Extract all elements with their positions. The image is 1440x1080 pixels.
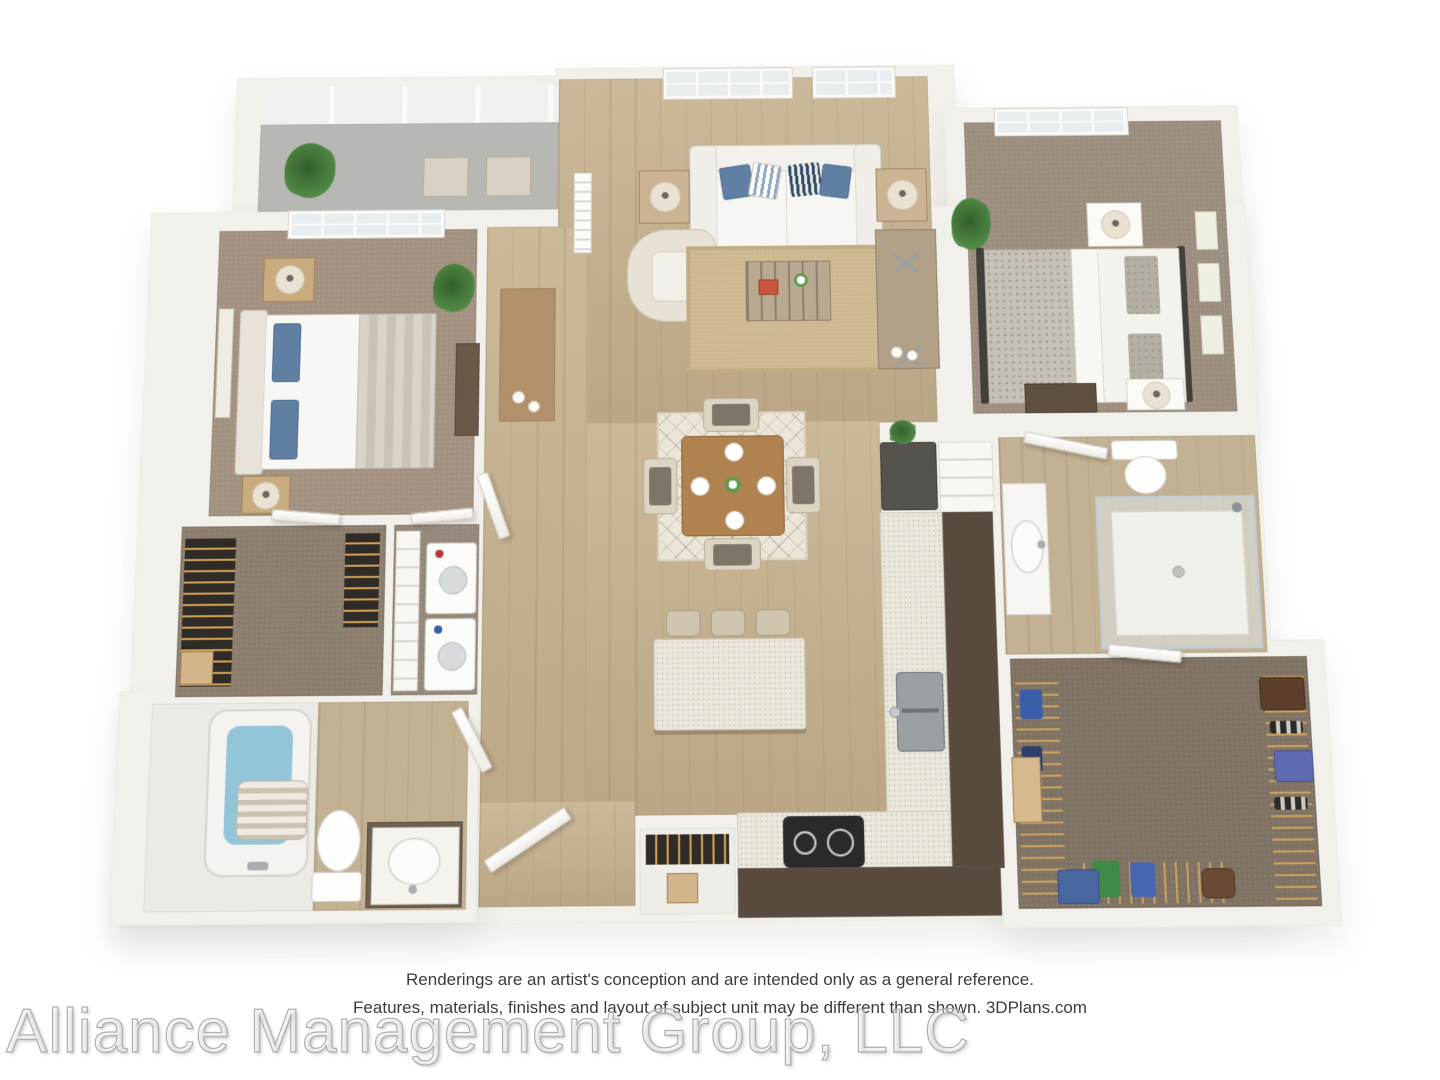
toilet-1 <box>307 809 366 906</box>
media-console-x-detail-1 <box>888 245 924 280</box>
shower-head <box>1232 502 1243 512</box>
kitchen-faucet <box>889 707 901 719</box>
shower-enclosure <box>1095 495 1263 649</box>
dining-chair-bottom-seat <box>713 543 752 565</box>
watermark-text: Alliance Management Group, LLC <box>6 996 970 1067</box>
stove-cooktop <box>783 816 865 868</box>
bathroom-2-faucet <box>1037 540 1045 548</box>
coat-closet-box <box>667 873 699 904</box>
bedroom-1-window <box>288 210 444 238</box>
hall-console-vase-1 <box>512 391 525 404</box>
laundry-shelves <box>393 531 421 692</box>
stair-railing <box>574 173 592 253</box>
living-room-window-right <box>813 67 895 97</box>
bed-2-patterned-blanket <box>984 249 1079 404</box>
kitchen-sink <box>896 672 945 752</box>
coffee-table-magazine <box>758 279 778 295</box>
kitchen-sink-divider <box>902 708 939 713</box>
bathroom-2-vanity <box>1002 483 1051 615</box>
dryer-drum <box>437 642 466 671</box>
bedroom-2-window <box>995 108 1128 135</box>
bathroom-1-vanity <box>365 821 463 908</box>
kitchen-cabinets-bottom <box>738 866 1003 918</box>
washer-drum <box>439 566 468 595</box>
dining-plate-4 <box>757 476 776 495</box>
bathtub <box>203 709 312 878</box>
end-table-left-lamp <box>649 182 680 213</box>
disclaimer-line-1: Renderings are an artist's conception an… <box>0 966 1440 994</box>
bed-2-pillow-top <box>1124 256 1160 314</box>
dining-plate-2 <box>725 511 744 530</box>
dining-chair-bottom <box>704 538 761 571</box>
sofa-pillow-4 <box>819 163 852 199</box>
dining-plate-3 <box>690 477 709 496</box>
island-stool-1 <box>666 610 701 637</box>
floor-plan-rendering-page: Renderings are an artist's conception an… <box>0 0 1440 1080</box>
refrigerator <box>880 442 938 511</box>
coffee-table <box>745 261 831 322</box>
closet-2-blue-shirt-bottom <box>1130 862 1157 897</box>
dining-centerpiece-flowers <box>725 477 741 493</box>
bedroom-2-wall-art-1 <box>1195 211 1219 249</box>
dryer <box>424 618 476 691</box>
dining-chair-left <box>643 458 677 515</box>
bedroom-2-lamp-top <box>1100 210 1131 239</box>
dining-chair-top-seat <box>712 404 750 427</box>
bedroom-2-wall-art-3 <box>1200 315 1224 354</box>
toilet-1-bowl <box>316 809 361 872</box>
stove-burner-2 <box>827 829 855 857</box>
dining-table <box>681 435 785 536</box>
closet-2-shoes-1 <box>1270 721 1304 734</box>
pantry-shelves <box>938 441 995 514</box>
end-table-right-lamp <box>886 180 918 211</box>
media-console-vase-1 <box>891 346 903 358</box>
toilet-1-tank <box>311 872 362 903</box>
closet-2-folded-jeans <box>1057 869 1100 904</box>
closet-2-bag <box>1201 868 1236 899</box>
coffee-table-flowers <box>794 273 808 287</box>
toilet-2-bowl <box>1123 456 1167 494</box>
apartment-floor-plan <box>99 62 1350 959</box>
bedroom-2-dresser <box>1024 383 1097 413</box>
dining-chair-left-seat <box>649 467 672 505</box>
bed-1-pillow-bottom <box>269 400 299 460</box>
living-room-window-left <box>664 68 792 99</box>
sofa-pillow-3 <box>788 162 823 197</box>
washer-knob <box>435 550 443 558</box>
closet-2-blue-shirt-left <box>1019 690 1043 719</box>
porch-chair-2 <box>486 156 531 196</box>
bed-1-pillow-top <box>272 323 302 382</box>
island-stool-3 <box>755 609 790 636</box>
dining-chair-top <box>703 398 759 432</box>
media-console <box>875 229 940 369</box>
washer <box>425 542 477 614</box>
floor-plan-3d-view <box>125 52 1315 932</box>
dining-plate-1 <box>724 443 743 462</box>
island-stool-2 <box>711 609 746 636</box>
bed-1-striped-blanket <box>355 313 436 469</box>
dryer-knob <box>434 625 442 633</box>
bedroom-2-wall-art-2 <box>1197 263 1221 302</box>
closet-1-hanging-clothes-right <box>343 533 380 627</box>
bedroom-2-lamp-bottom <box>1142 381 1171 409</box>
closet-2-shoes-2 <box>1274 797 1308 810</box>
sofa-pillow-2 <box>748 162 783 200</box>
bathtub-faucet <box>247 862 268 871</box>
hall-console-table <box>499 288 556 422</box>
dining-chair-right <box>786 457 821 514</box>
porch-chair-1 <box>423 157 469 197</box>
media-console-vase-2 <box>907 350 918 361</box>
closet-2-shelf-boxes <box>1011 757 1042 823</box>
toilet-2 <box>1111 440 1178 495</box>
coat-closet-clothes <box>646 834 729 865</box>
porch-screen-windows <box>261 85 559 127</box>
kitchen-counter-right <box>880 512 952 822</box>
stove-burner-1 <box>793 831 816 855</box>
bedroom-1-bed <box>234 308 438 472</box>
closet-2-brown-box <box>1259 677 1306 711</box>
dining-chair-right-seat <box>792 466 815 504</box>
kitchen-plant <box>889 420 916 444</box>
closet-2-blue-folded-shirt <box>1273 750 1314 782</box>
shower-curtain-roll <box>236 780 309 840</box>
shower-drain <box>1172 566 1185 578</box>
bedroom-1-dresser <box>454 343 479 436</box>
hall-console-vase-2 <box>528 401 540 413</box>
closet-1-storage-box <box>180 651 214 685</box>
kitchen-island <box>654 638 807 731</box>
